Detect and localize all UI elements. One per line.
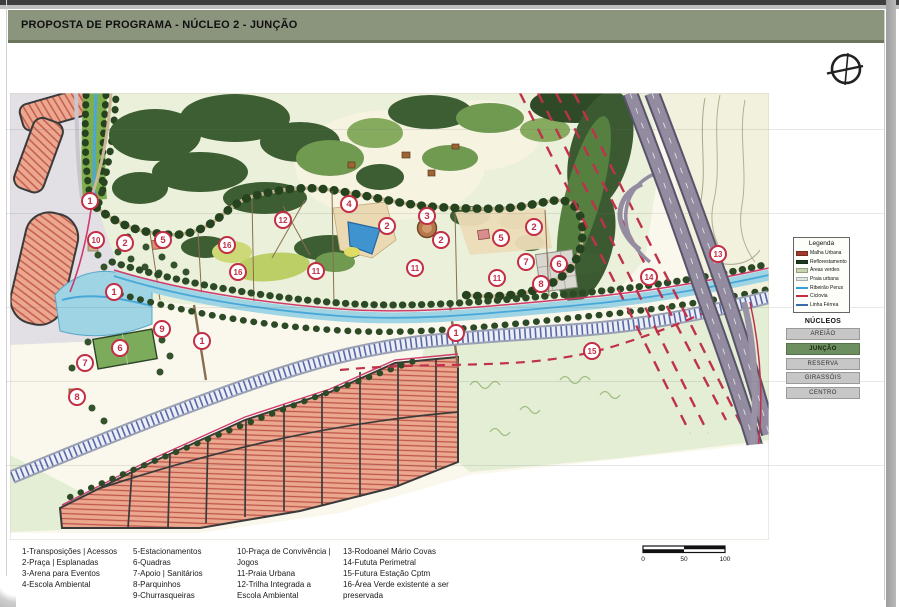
scale-label-0: 0 (641, 556, 645, 563)
svg-text:1: 1 (87, 196, 93, 207)
legend-label: Reflorestamento (810, 259, 847, 265)
map-marker-9: 9 (154, 321, 170, 337)
map-marker-8: 8 (533, 276, 549, 292)
svg-text:6: 6 (556, 259, 561, 270)
legend-item: Reflorestamento (796, 258, 847, 267)
program-column: 1-Transposições | Acessos2-Praça | Espla… (22, 547, 125, 602)
svg-text:12: 12 (279, 216, 288, 225)
legend-item: Áreas verdes (796, 266, 847, 275)
svg-text:1: 1 (199, 336, 205, 347)
legend-swatch-fill (796, 268, 808, 273)
nucleo-button-centro[interactable]: CENTRO (786, 387, 860, 399)
map-marker-1: 1 (448, 325, 464, 341)
program-item: 10-Praça de Convivência | Jogos (237, 547, 335, 569)
program-item: 8-Parquinhos (133, 580, 229, 591)
scan-artifact-line (6, 213, 884, 214)
svg-text:6: 6 (117, 343, 122, 354)
map-marker-15: 15 (584, 343, 600, 359)
legend-swatch-fill (796, 260, 808, 265)
svg-text:11: 11 (493, 274, 502, 283)
map-marker-10: 10 (88, 232, 104, 248)
legend-swatch-line (796, 304, 808, 306)
legend-item: Linha Férrea (796, 301, 847, 310)
page-title: PROPOSTA DE PROGRAMA - NÚCLEO 2 - JUNÇÃO (8, 10, 884, 40)
map-marker-1: 1 (82, 193, 98, 209)
map-marker-3: 3 (419, 208, 435, 224)
svg-text:7: 7 (523, 257, 528, 268)
scale-label-100: 100 (720, 556, 731, 563)
program-item: 4-Escola Ambiental (22, 580, 125, 591)
svg-text:16: 16 (223, 241, 232, 250)
map-marker-1: 1 (106, 284, 122, 300)
legend-label: Áreas verdes (810, 267, 839, 273)
map-marker-16: 16 (219, 237, 235, 253)
nucleo-button-reserva[interactable]: RESERVA (786, 358, 860, 370)
map-marker-2: 2 (117, 235, 133, 251)
legend-item: Praia urbana (796, 275, 847, 284)
svg-text:5: 5 (160, 235, 166, 246)
program-item: 6-Quadras (133, 558, 229, 569)
map-marker-11: 11 (407, 260, 423, 276)
map-marker-5: 5 (155, 232, 171, 248)
program-item: 15-Futura Estação Cptm (343, 569, 463, 580)
svg-text:8: 8 (74, 392, 79, 403)
program-item: 2-Praça | Esplanadas (22, 558, 125, 569)
svg-text:9: 9 (159, 324, 164, 335)
map-marker-2: 2 (379, 218, 395, 234)
program-item: 13-Rodoanel Mário Covas (343, 547, 463, 558)
nucleos-title: NÚCLEOS (786, 318, 860, 325)
map-marker-8: 8 (69, 389, 85, 405)
nucleo-button-junção[interactable]: JUNÇÃO (786, 343, 860, 355)
legend-swatch-fill (796, 277, 808, 282)
map-marker-6: 6 (551, 256, 567, 272)
legend-label: Linha Férrea (810, 302, 838, 308)
program-item: 16-Área Verde existente a ser preservada (343, 580, 463, 602)
svg-text:13: 13 (714, 250, 723, 259)
scan-artifact-line (6, 307, 884, 308)
program-column: 5-Estacionamentos6-Quadras7-Apoio | Sani… (133, 547, 229, 602)
program-list: 1-Transposições | Acessos2-Praça | Espla… (22, 547, 472, 602)
svg-text:11: 11 (312, 267, 321, 276)
svg-text:7: 7 (82, 358, 87, 369)
program-item: 5-Estacionamentos (133, 547, 229, 558)
master-plan-map: 110251616121119678142321152768111151413 (0, 0, 899, 607)
svg-text:2: 2 (531, 222, 536, 233)
svg-text:11: 11 (411, 264, 420, 273)
nucleos-panel: NÚCLEOS AREIÃOJUNÇÃORESERVAGIRASSÓISCENT… (786, 318, 860, 402)
svg-text:4: 4 (346, 199, 352, 210)
program-column: 10-Praça de Convivência | Jogos11-Praia … (237, 547, 335, 602)
scale-bar: 0 50 100 (636, 543, 736, 565)
svg-text:5: 5 (498, 233, 504, 244)
map-marker-14: 14 (641, 269, 657, 285)
scan-artifact-line (6, 465, 884, 466)
scan-artifact-line (6, 129, 884, 130)
svg-text:16: 16 (234, 268, 243, 277)
map-marker-11: 11 (489, 270, 505, 286)
svg-text:2: 2 (438, 235, 443, 246)
nucleos-buttons: AREIÃOJUNÇÃORESERVAGIRASSÓISCENTRO (786, 328, 860, 399)
map-marker-16: 16 (230, 264, 246, 280)
north-indicator-icon (827, 53, 863, 85)
svg-text:1: 1 (453, 328, 459, 339)
map-marker-7: 7 (518, 254, 534, 270)
legend-title: Legenda (796, 240, 847, 247)
svg-text:14: 14 (645, 273, 654, 282)
legend: Legenda Malha UrbanaReflorestamentoÁreas… (793, 237, 850, 313)
map-marker-13: 13 (710, 246, 726, 262)
map-marker-1: 1 (194, 333, 210, 349)
legend-item: Ciclovia (796, 292, 847, 301)
program-item: 14-Fututa Perimetral (343, 558, 463, 569)
legend-item: Malha Urbana (796, 249, 847, 258)
map-marker-7: 7 (77, 355, 93, 371)
scale-label-50: 50 (680, 556, 688, 563)
map-marker-2: 2 (433, 232, 449, 248)
nucleo-button-areião[interactable]: AREIÃO (786, 328, 860, 340)
svg-text:8: 8 (538, 279, 543, 290)
program-item: 1-Transposições | Acessos (22, 547, 125, 558)
program-item: 9-Churrasqueiras (133, 591, 229, 602)
legend-label: Ribeirão Perus (810, 285, 843, 291)
legend-items: Malha UrbanaReflorestamentoÁreas verdesP… (796, 249, 847, 309)
program-item: 11-Praia Urbana (237, 569, 335, 580)
legend-swatch-line (796, 287, 808, 289)
scan-artifact-line (6, 381, 884, 382)
legend-label: Ciclovia (810, 293, 828, 299)
program-item: 3-Arena para Eventos (22, 569, 125, 580)
program-item: 7-Apoio | Sanitários (133, 569, 229, 580)
map-marker-2: 2 (526, 219, 542, 235)
svg-text:10: 10 (92, 236, 101, 245)
svg-text:2: 2 (384, 221, 389, 232)
program-item: 12-Trilha Integrada a Escola Ambiental (237, 580, 335, 602)
svg-text:2: 2 (122, 238, 127, 249)
legend-swatch-line (796, 295, 808, 297)
map-marker-4: 4 (341, 196, 357, 212)
svg-text:15: 15 (588, 347, 597, 356)
legend-item: Ribeirão Perus (796, 283, 847, 292)
svg-text:1: 1 (111, 287, 117, 298)
legend-label: Praia urbana (810, 276, 839, 282)
title-bar: PROPOSTA DE PROGRAMA - NÚCLEO 2 - JUNÇÃO (8, 10, 884, 43)
page-corner-curl (0, 576, 16, 607)
map-marker-6: 6 (112, 340, 128, 356)
legend-label: Malha Urbana (810, 250, 841, 256)
map-marker-5: 5 (493, 230, 509, 246)
map-marker-11: 11 (308, 263, 324, 279)
legend-swatch-fill (796, 251, 808, 256)
program-column: 13-Rodoanel Mário Covas14-Fututa Perimet… (343, 547, 463, 602)
map-marker-12: 12 (275, 212, 291, 228)
nucleo-button-girassóis[interactable]: GIRASSÓIS (786, 372, 860, 384)
